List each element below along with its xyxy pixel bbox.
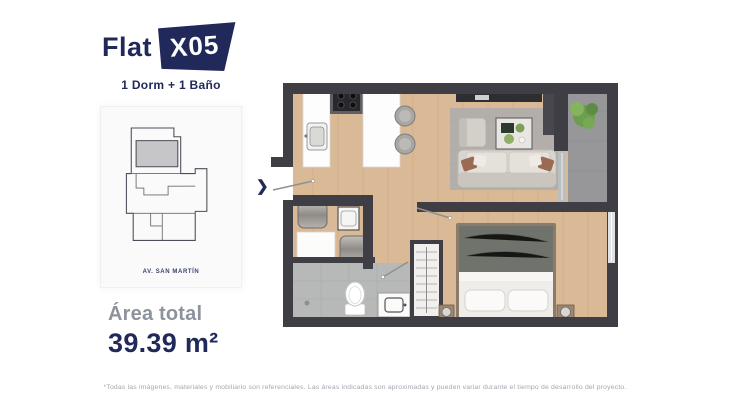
bedroom-divider-wall <box>417 202 618 212</box>
sheet-fold <box>459 272 553 281</box>
kitchen-island <box>363 86 400 167</box>
unit-config-label: 1 Dorm + 1 Baño <box>96 78 246 92</box>
unit-highlight <box>136 141 178 167</box>
keyplan-diagram <box>108 115 234 267</box>
wall-left-lower <box>283 200 293 327</box>
balcony-wall <box>554 83 568 151</box>
nightstand-right <box>557 305 574 319</box>
coffee-table <box>496 118 532 149</box>
street-label: AV. SAN MARTÍN <box>143 269 200 275</box>
shower-drain-icon <box>305 301 310 306</box>
floorplan: ❯ <box>253 66 629 336</box>
disclaimer-text: *Todas las imágenes, materiales y mobili… <box>0 384 730 391</box>
unit-code: X05 <box>169 29 220 63</box>
unit-code-badge: X05 <box>152 20 238 72</box>
lamp-icon <box>561 307 571 317</box>
wardrobe <box>410 240 443 320</box>
unit-info-panel: Flat X05 1 Dorm + 1 Baño <box>96 18 246 92</box>
bedroom <box>439 223 574 320</box>
keyplan-card: AV. SAN MARTÍN <box>100 106 242 288</box>
entry-wall-stub <box>271 157 293 167</box>
sofa <box>458 150 556 187</box>
nightstand-left <box>439 305 454 319</box>
entrance-arrow-icon: ❯ <box>256 178 269 195</box>
unit-divisions <box>131 174 195 241</box>
armchair <box>459 118 486 147</box>
closet-wall-bottom <box>293 257 375 263</box>
wall-top <box>293 83 618 94</box>
wall-bottom <box>293 317 618 327</box>
pillow <box>465 290 505 311</box>
wall-left-upper <box>283 83 293 167</box>
pillow <box>508 290 548 311</box>
area-label: Área total <box>108 303 242 326</box>
area-value: 39.39 m² <box>108 328 242 359</box>
toilet-icon <box>345 282 365 315</box>
unit-title: Flat X05 <box>96 18 246 74</box>
vanity-sink-icon <box>378 293 410 317</box>
lamp-icon <box>442 308 451 317</box>
area-block: Área total 39.39 m² <box>100 303 242 359</box>
unit-type-label: Flat <box>102 32 152 63</box>
blanket <box>459 226 553 272</box>
tv-decor <box>475 95 489 100</box>
tv-console <box>456 93 542 102</box>
closet-wall-top <box>293 195 373 206</box>
sink-icon <box>304 123 327 150</box>
